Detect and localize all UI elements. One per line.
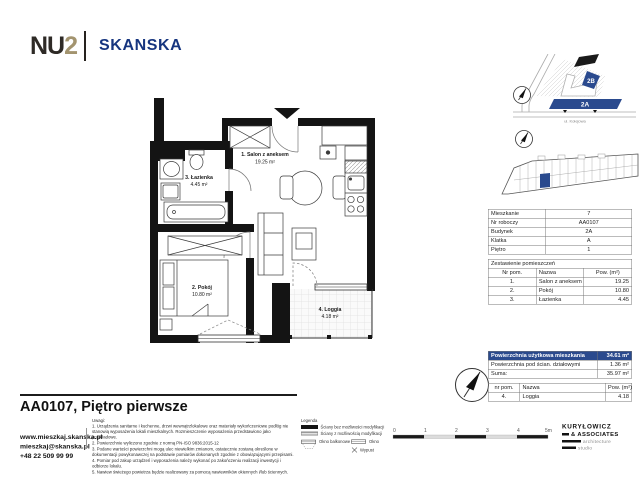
table-row: Suma:35.97 m² (488, 369, 632, 378)
room-label-pokoj: 2. Pokój (192, 285, 212, 291)
legend-title: Legenda (301, 418, 396, 423)
svg-text:0: 0 (393, 428, 396, 434)
table-row: 4.Loggia4.18 (488, 392, 632, 401)
rooms-table: Zestawienie pomieszczeń Nr pom. Nazwa Po… (488, 259, 632, 305)
room-label-lazienka: 3. Łazienka (185, 175, 213, 181)
legend-item: Ściany z możliwością modyfikacji (301, 431, 396, 436)
note-item: 2. Powierzchnie wyliczono zgodnie z norm… (92, 441, 294, 447)
table-row: Powierzchnia pod ścian. działowymi1.36 m… (488, 360, 632, 369)
kitchen-cabinet (322, 126, 367, 145)
table-row: Zestawienie pomieszczeń (488, 259, 632, 268)
sofa (258, 213, 283, 275)
legend-item: Wypust (351, 446, 379, 453)
nu2-logo: NU2 (30, 32, 77, 61)
highlighted-unit (540, 173, 550, 188)
info-table: Mieszkanie7 Nr roboczyAA0107 Budynek2A K… (488, 209, 632, 255)
site-black-bar (574, 54, 599, 67)
note-item: 5. Nawiew świeżego powietrza będzie real… (92, 470, 294, 476)
building-2a-label: 2A (581, 102, 590, 109)
table-row: Nr roboczyAA0107 (488, 218, 632, 227)
modifiable-wall-swatch (301, 431, 318, 435)
chair (280, 176, 293, 199)
fixed-wall-swatch (301, 425, 318, 429)
nu2-logo-nu: NU (30, 32, 64, 60)
rooms-table-wrap: Zestawienie pomieszczeń Nr pom. Nazwa Po… (488, 259, 632, 305)
entrance-marker (274, 108, 300, 119)
note-item: 1. Urządzenia sanitarne i kuchenne, drzw… (92, 424, 294, 441)
stove-burner (357, 206, 363, 212)
room-area-loggia: 4.18 m² (322, 314, 339, 320)
svg-text:1: 1 (424, 428, 427, 434)
table-header-row: Nr pom. Nazwa Pow. (m²) (488, 268, 632, 277)
legend-item: Okno balkonowe (301, 439, 351, 456)
stove-burner (348, 196, 354, 202)
header-logos: NU2 SKANSKA (30, 31, 182, 61)
legend: Legenda Ściany bez możliwości modyfikacj… (301, 418, 396, 455)
usable-area-row: Powierzchnia użytkowa mieszkania34.61 m² (488, 351, 632, 360)
room-label-salon: 1. Salon z aneksem (241, 152, 289, 158)
logo-bar (562, 433, 569, 435)
info-table-wrap: Mieszkanie7 Nr roboczyAA0107 Budynek2A K… (488, 209, 632, 255)
legend-item: Okno (351, 439, 379, 445)
architect-name: KURYŁOWICZ (562, 423, 640, 430)
page-title: AA0107, Piętro pierwsze (20, 399, 188, 415)
building-2b-label: 2B (587, 79, 595, 85)
floor-plan-drawing: 1. Salon z aneksem 19.25 m² 3. Łazienka … (140, 98, 386, 354)
svg-text:4: 4 (517, 428, 520, 434)
svg-text:3: 3 (486, 428, 489, 434)
floorplan-sheet: NU2 SKANSKA (0, 0, 640, 480)
footer-divider (20, 394, 297, 396)
balcony-door-swing (293, 263, 317, 286)
table-row: 1.Salon z aneksem19.25 (488, 277, 632, 286)
table-row: Piętro1 (488, 245, 632, 254)
table-header-row: nr pom. Nazwa Pow. (m²) (488, 383, 632, 392)
svg-text:5m: 5m (545, 428, 552, 434)
street-label: ul. Kolejowa (564, 119, 586, 124)
balcony-window-icon (301, 439, 317, 450)
note-item: 3. Podane wartości powierzchni mogą ulec… (92, 447, 294, 458)
outlet-icon (351, 446, 358, 453)
building-floor-overview (500, 152, 640, 197)
notes-block: Uwagi: 1. Urządzenia sanitarne i kuchenn… (92, 418, 294, 476)
logo-divider (84, 31, 86, 61)
logo-bar (562, 440, 581, 442)
compass-icon (514, 129, 534, 149)
nightstand (160, 319, 172, 330)
toilet-bowl (190, 155, 203, 170)
stove-burner (357, 196, 363, 202)
location-marker (563, 110, 567, 113)
skanska-logo: SKANSKA (99, 37, 182, 55)
loggia-table-wrap: nr pom. Nazwa Pow. (m²) 4.Loggia4.18 (488, 383, 632, 402)
note-item: 4. Pomiar pod zakup urządzeń i wyposażen… (92, 458, 294, 469)
table-row: Budynek2A (488, 227, 632, 236)
table-row: 3.Łazienka4.45 (488, 295, 632, 304)
table-row: 2.Pokój10.80 (488, 286, 632, 295)
chair (333, 176, 346, 199)
architect-logo: KURYŁOWICZ & ASSOCIATES architecture stu… (562, 423, 640, 452)
nu2-logo-2: 2 (64, 32, 77, 60)
loggia-table: nr pom. Nazwa Pow. (m²) 4.Loggia4.18 (488, 383, 632, 402)
compass-icon (453, 366, 491, 404)
window-icon (351, 439, 367, 445)
svg-text:2: 2 (455, 428, 458, 434)
contact-divider (86, 428, 87, 449)
room-label-loggia: 4. Loggia (319, 307, 342, 313)
area-table: Powierzchnia użytkowa mieszkania34.61 m²… (488, 351, 632, 379)
room-area-pokoj: 10.80 m² (192, 292, 212, 298)
table-row: KlatkaA (488, 236, 632, 245)
sink (164, 162, 180, 177)
legend-item: Ściany bez możliwości modyfikacji (301, 425, 396, 430)
table-row: Mieszkanie7 (488, 209, 632, 218)
stove-burner (348, 206, 354, 212)
pillow (163, 263, 174, 285)
room-area-salon: 19.25 m² (255, 160, 275, 166)
pillow (163, 287, 174, 309)
room-area-lazienka: 4.45 m² (191, 182, 208, 188)
location-marker (593, 110, 597, 113)
logo-bar (562, 447, 576, 449)
compass-icon (512, 85, 532, 105)
scale-bar: 0 1 2 3 4 5m (392, 426, 558, 444)
area-table-wrap: Powierzchnia użytkowa mieszkania34.61 m²… (488, 351, 632, 379)
